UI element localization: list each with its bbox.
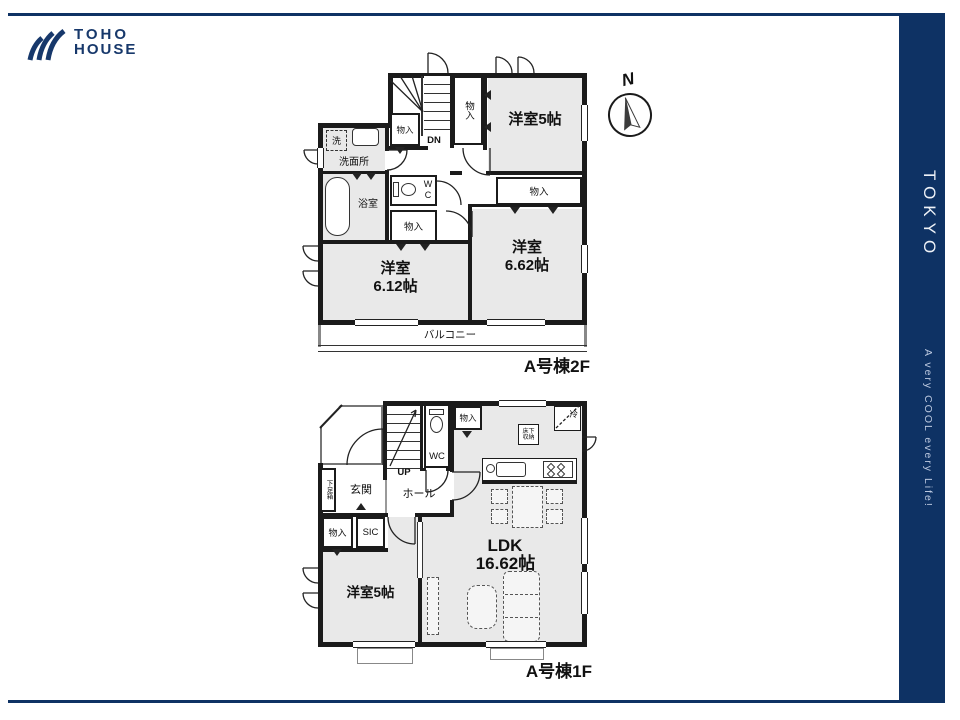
f2-wc-label: WC — [422, 179, 434, 201]
f2-bath-label: 浴室 — [351, 199, 385, 210]
f2-window-bottom-1 — [355, 319, 418, 326]
compass — [604, 89, 656, 141]
f2-window-left-wash — [317, 148, 324, 168]
f2-wall-washroom-right — [385, 125, 389, 242]
f2-wall-stairs-bottom — [388, 146, 428, 150]
banner-title: TOKYO — [905, 160, 939, 270]
f1-sic: SIC — [356, 517, 385, 548]
f1-kitchen-counter-front — [482, 480, 577, 484]
f1-underfloor-storage: 床下 収納 — [518, 424, 539, 445]
f1-entrance-step — [385, 480, 387, 513]
banner-tagline: A very COOL every Life! — [910, 298, 934, 558]
f2-sink — [352, 128, 379, 146]
f1-entrance-label: 玄関 — [338, 484, 384, 496]
f2-bedroom662-name: 洋室 — [472, 240, 582, 257]
tv-board — [427, 577, 439, 635]
f1-fridge-space: 冷 — [554, 406, 581, 431]
f2-bedroom662-size: 6.62帖 — [472, 258, 582, 275]
f2-window-bottom-2 — [487, 319, 545, 326]
window-casement-arc — [304, 150, 318, 164]
window-casement-arc — [303, 593, 318, 608]
f1-kitchen-faucet — [486, 464, 495, 473]
f2-balcony-rail — [318, 345, 587, 352]
f1-porch — [320, 405, 383, 465]
f1-underfloor-label2: 収納 — [522, 435, 534, 441]
f1-bedroom5-door-area — [388, 517, 418, 554]
closet-door-mark — [462, 431, 472, 438]
sofa-cushion-line — [505, 594, 538, 595]
dining-table — [512, 486, 543, 528]
window-casement-arc — [496, 57, 512, 73]
dining-chair — [546, 509, 563, 524]
closet-door-mark — [510, 207, 520, 214]
f2-window-right-2 — [581, 245, 588, 273]
window-casement-arc — [303, 246, 318, 261]
f2-toilet-tank — [393, 182, 399, 197]
f2-door-gap-washroom — [385, 151, 389, 170]
f1-sic-label: SIC — [363, 527, 379, 538]
f2-closet-c: 物入 — [390, 210, 437, 242]
f2-closet-d: 物入 — [496, 177, 582, 205]
f1-window-right-2 — [581, 572, 588, 614]
coffee-table — [467, 585, 497, 629]
f2-closet-c-label: 物入 — [404, 219, 423, 233]
f1-wall-bed5-top — [318, 548, 388, 552]
entrance-step-mark — [356, 503, 366, 510]
bath-door-mark — [352, 173, 362, 180]
f1-shoe-cabinet-label: 下足箱 — [323, 480, 333, 500]
f1-door-gap-wc — [426, 468, 446, 471]
closet-door-mark — [396, 244, 406, 251]
f2-bedroom5-label: 洋室5帖 — [488, 112, 582, 129]
dining-chair — [491, 489, 508, 504]
f1-caption: A号棟1F — [472, 663, 592, 682]
f1-terrace-step — [490, 648, 544, 660]
f2-window-right-1 — [581, 105, 588, 141]
closet-door-mark — [484, 90, 491, 100]
closet-door-mark — [420, 244, 430, 251]
f2-closet-b: 物入 — [453, 76, 483, 145]
f1-window-bottom-2 — [486, 641, 546, 648]
f1-stairs-label: UP — [389, 468, 419, 478]
f2-closet-a-label: 物入 — [396, 124, 413, 136]
f1-ldk-size: 16.62帖 — [448, 555, 563, 574]
f1-door-gap-bed5 — [388, 513, 415, 517]
f2-closet-d-label: 物入 — [529, 184, 548, 198]
f1-wall-stairs-right — [420, 401, 423, 471]
sofa-cushion-line — [505, 617, 538, 618]
f2-wall-bed5-left — [483, 73, 487, 150]
compass-needle — [606, 91, 652, 137]
f2-closet-b-label: 物入 — [461, 101, 475, 120]
f1-window-right-1 — [581, 518, 588, 564]
top-border — [8, 13, 945, 16]
door-arc — [428, 53, 448, 73]
f2-bedroom612-name: 洋室 — [323, 261, 468, 278]
f1-stairs — [387, 406, 420, 469]
closet-door-mark — [332, 549, 342, 556]
f2-toilet-bowl — [401, 183, 416, 196]
flyer-page: TOKYO A very COOL every Life! TOHO HOUSE… — [0, 0, 960, 720]
window-casement-arc — [303, 568, 318, 583]
f1-ldk-lower — [422, 513, 582, 642]
f1-toilet-bowl — [430, 416, 443, 433]
f2-closet-a: 物入 — [390, 113, 420, 146]
f2-wall-top — [388, 73, 587, 78]
closet-door-mark — [395, 147, 405, 154]
f2-washroom-label: 洗面所 — [323, 157, 385, 168]
stairs-winder-lines — [390, 76, 423, 112]
f1-hall-label: ホール — [389, 488, 449, 500]
f1-closet-top-label: 物入 — [459, 412, 476, 424]
f2-bedroom612-size: 6.12帖 — [323, 279, 468, 296]
f1-shoe-cabinet: 下足箱 — [320, 468, 336, 512]
roof-icon — [24, 26, 72, 64]
f1-toilet-tank — [429, 409, 444, 415]
f2-bathtub — [325, 177, 350, 236]
door-arc — [437, 181, 461, 205]
f2-caption: A号棟2F — [470, 358, 590, 377]
f2-washer: 洗 — [326, 130, 347, 151]
f1-sliding-door — [417, 522, 423, 578]
f1-kitchen-sink — [496, 462, 526, 477]
f1-closet-top: 物入 — [454, 406, 482, 430]
sofa — [503, 571, 540, 642]
window-casement-arc — [303, 271, 318, 286]
dining-chair — [546, 489, 563, 504]
f2-balcony-label: バルコニー — [390, 330, 510, 342]
f1-ldk-name: LDK — [455, 537, 555, 556]
f1-window-top — [499, 400, 546, 407]
f2-washer-label: 洗 — [332, 134, 341, 147]
bath-door-mark — [366, 173, 376, 180]
brand-line2: HOUSE — [74, 41, 137, 58]
bottom-border — [8, 700, 945, 703]
f2-stairs-label: DN — [418, 136, 450, 146]
brand-logo: TOHO HOUSE — [24, 24, 224, 64]
f2-door-gap-hall — [462, 171, 486, 175]
window-casement-arc — [518, 57, 534, 73]
f1-wc-label: WC — [424, 452, 450, 462]
closet-door-mark — [548, 207, 558, 214]
f1-window-bottom-1 — [353, 641, 415, 648]
f1-fridge-label: 冷 — [569, 407, 580, 420]
f1-closet-b-label: 物入 — [328, 526, 346, 539]
dining-chair — [491, 509, 508, 524]
f1-bedroom5-label: 洋室5帖 — [323, 586, 418, 601]
compass-north-label: N — [620, 69, 636, 91]
f1-closet-b: 物入 — [322, 517, 353, 548]
f1-terrace-step — [357, 648, 413, 664]
closet-door-mark — [484, 122, 491, 132]
